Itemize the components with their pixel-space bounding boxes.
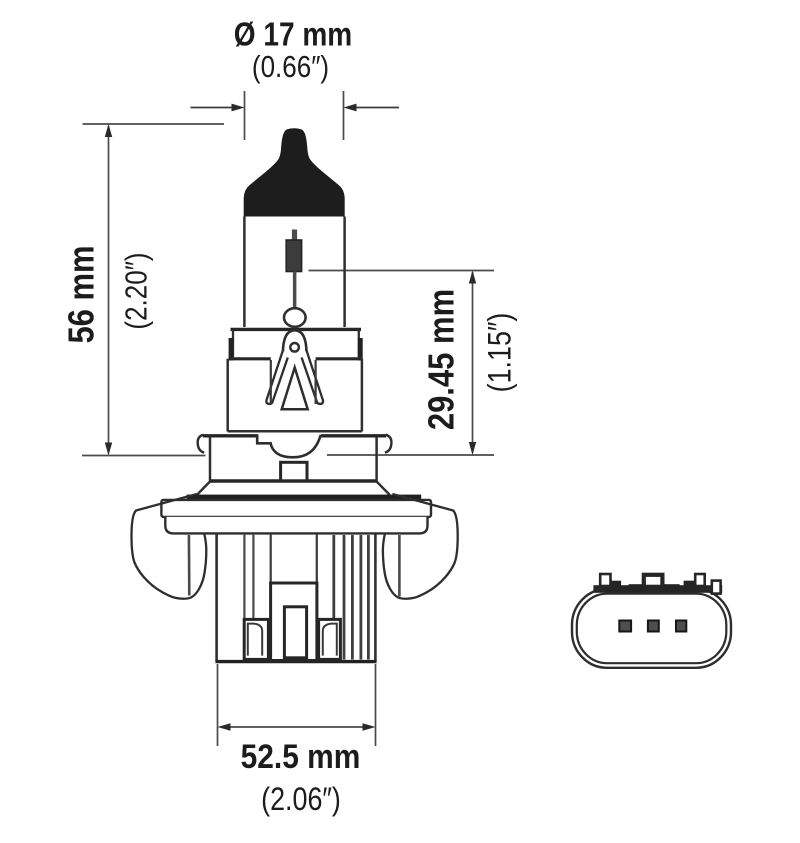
svg-text:Ø 17 mm: Ø 17 mm [234, 16, 352, 53]
svg-text:(0.66″): (0.66″) [252, 50, 329, 85]
svg-text:(2.20″): (2.20″) [119, 252, 154, 329]
svg-text:52.5 mm: 52.5 mm [241, 737, 361, 775]
svg-text:(2.06″): (2.06″) [261, 782, 341, 818]
svg-text:(1.15″): (1.15″) [482, 313, 518, 393]
svg-text:56 mm: 56 mm [62, 245, 102, 343]
svg-text:29.45 mm: 29.45 mm [421, 289, 462, 430]
